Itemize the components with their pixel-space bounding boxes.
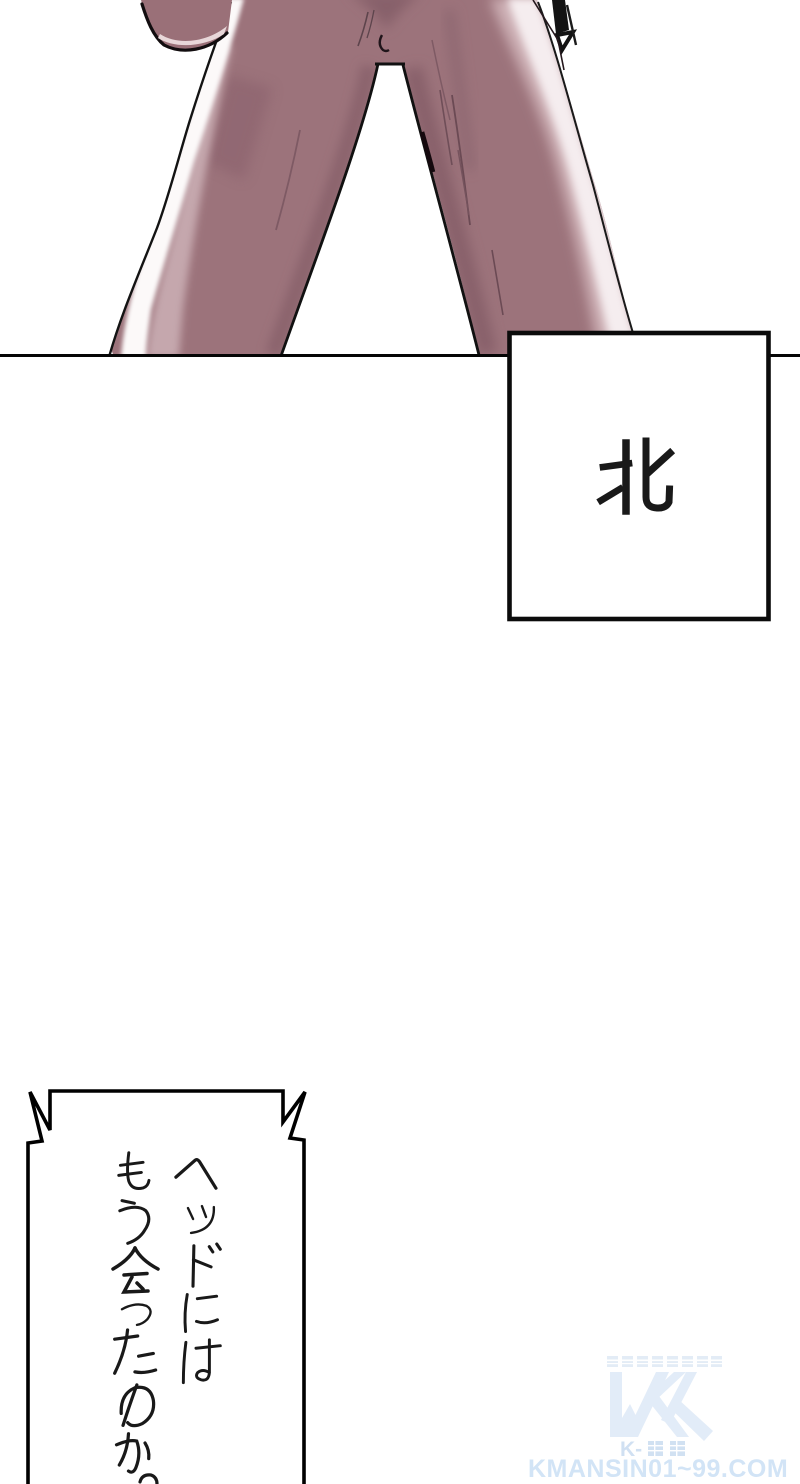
svg-text:KMANSIN01~99.COM: KMANSIN01~99.COM	[528, 1455, 788, 1483]
